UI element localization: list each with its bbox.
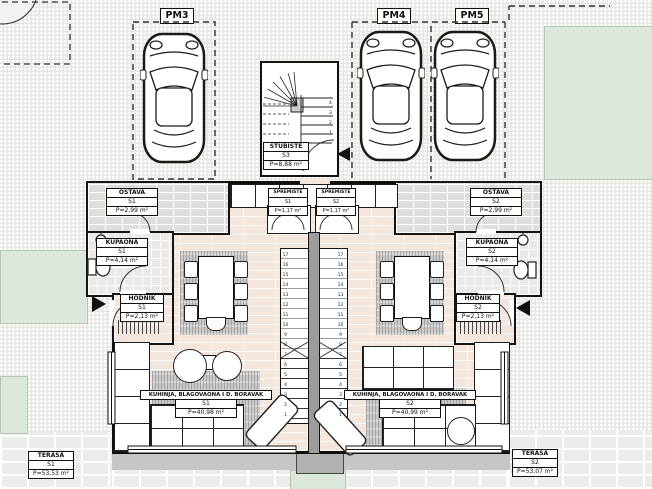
dining-table-s1 [198, 256, 234, 319]
terrace-tiles-left-strip [112, 470, 290, 489]
room-area: P=2,99 m² [470, 206, 522, 216]
car-icon [357, 32, 425, 160]
room-area: P=40,99 m² [379, 408, 441, 418]
chair [430, 305, 444, 322]
room-label-terasa-s1: TERASA S1 P=53,53 m² [28, 452, 74, 479]
room-area: P=8,88 m² [263, 160, 309, 170]
room-label-ostava-s2: OSTAVA S2 P=2,99 m² [470, 189, 522, 216]
room-label-hodnik-s2: HODNIK S2 P=2,13 m² [456, 295, 500, 322]
lawn-left-strip [0, 376, 28, 434]
room-name: SPREMIŠTE [268, 188, 308, 198]
doormat-s1 [118, 320, 162, 334]
stair-step-numbers-right: 1234567891011121314151617 [336, 248, 345, 422]
wardrobe-band [230, 184, 398, 208]
room-label-hodnik-s1: HODNIK S1 P=2,13 m² [120, 295, 164, 322]
tree-icon [0, 0, 70, 64]
room-area: P=1,17 m² [316, 206, 356, 216]
car-icon [140, 34, 208, 162]
armchair-round [447, 417, 475, 445]
dining-table-s2 [394, 256, 430, 319]
chair [206, 317, 226, 331]
room-name: SPREMIŠTE [316, 188, 356, 198]
doormat-s2 [460, 320, 504, 334]
lawn-left [0, 250, 88, 324]
room-area: P=1,17 m² [268, 206, 308, 216]
entry-arrow-icon [92, 296, 106, 312]
room-area: P=2,13 m² [456, 312, 500, 322]
terrace-tiles-right-strip [344, 470, 508, 489]
room-label-spremiste-s1: SPREMIŠTE S1 P=1,17 m² [268, 189, 308, 216]
room-label-living-s1: KUHINJA, BLAGOVAONA I D. BORAVAK S1 P=40… [140, 391, 272, 418]
chair [184, 283, 198, 300]
chair [430, 283, 444, 300]
chair [234, 305, 248, 322]
room-area: P=4,14 m² [96, 256, 148, 266]
car-icon [431, 32, 499, 160]
sofa-s2 [362, 346, 454, 390]
room-area: P=2,99 m² [106, 206, 158, 216]
parking-label-pm5: PM5 [455, 8, 489, 24]
chair [380, 305, 394, 322]
room-area: P=40,98 m² [175, 408, 237, 418]
room-label-terasa-s2: TERASA S2 P=53,07 m² [512, 450, 558, 477]
chair [184, 305, 198, 322]
room-label-stubiste: STUBIŠTE S3 P=8,88 m² [263, 143, 309, 170]
chair [380, 261, 394, 278]
floor-plan-drawing: PM3 PM4 PM5 STUBIŠTE S3 P=8,88 m² 123456… [0, 0, 652, 489]
parking-stall-lines [133, 6, 610, 179]
armchair-round [212, 351, 242, 381]
room-label-living-s2: KUHINJA, BLAGOVAONA I D. BORAVAK S2 P=40… [344, 391, 476, 418]
room-area: P=53,07 m² [512, 467, 558, 477]
chair [430, 261, 444, 278]
room-name: KUHINJA, BLAGOVAONA I D. BORAVAK [344, 390, 476, 400]
room-label-ostava-s1: OSTAVA S1 P=2,99 m² [106, 189, 158, 216]
lawn-right [544, 26, 652, 180]
room-area: P=2,13 m² [120, 312, 164, 322]
room-label-kupaona-s2: KUPAONA S2 P=4,14 m² [466, 239, 518, 266]
chair [380, 283, 394, 300]
chair [234, 283, 248, 300]
room-name: STUBIŠTE [263, 142, 309, 152]
armchair-round [173, 349, 207, 383]
chair [184, 261, 198, 278]
room-area: P=4,14 m² [466, 256, 518, 266]
kitchen-counter-wall-s2 [474, 342, 510, 452]
parking-label-pm3: PM3 [160, 8, 194, 24]
chair [402, 317, 422, 331]
room-label-kupaona-s1: KUPAONA S1 P=4,14 m² [96, 239, 148, 266]
party-wall [308, 232, 320, 454]
parking-label-pm4: PM4 [377, 8, 411, 24]
entry-arrow-icon [516, 300, 530, 316]
room-area: P=53,53 m² [28, 469, 74, 479]
room-name: KUHINJA, BLAGOVAONA I D. BORAVAK [140, 390, 272, 400]
stair-step-numbers-left: 1234567891011121314151617 [281, 248, 290, 422]
chair [234, 261, 248, 278]
room-label-spremiste-s2: SPREMIŠTE S2 P=1,17 m² [316, 189, 356, 216]
